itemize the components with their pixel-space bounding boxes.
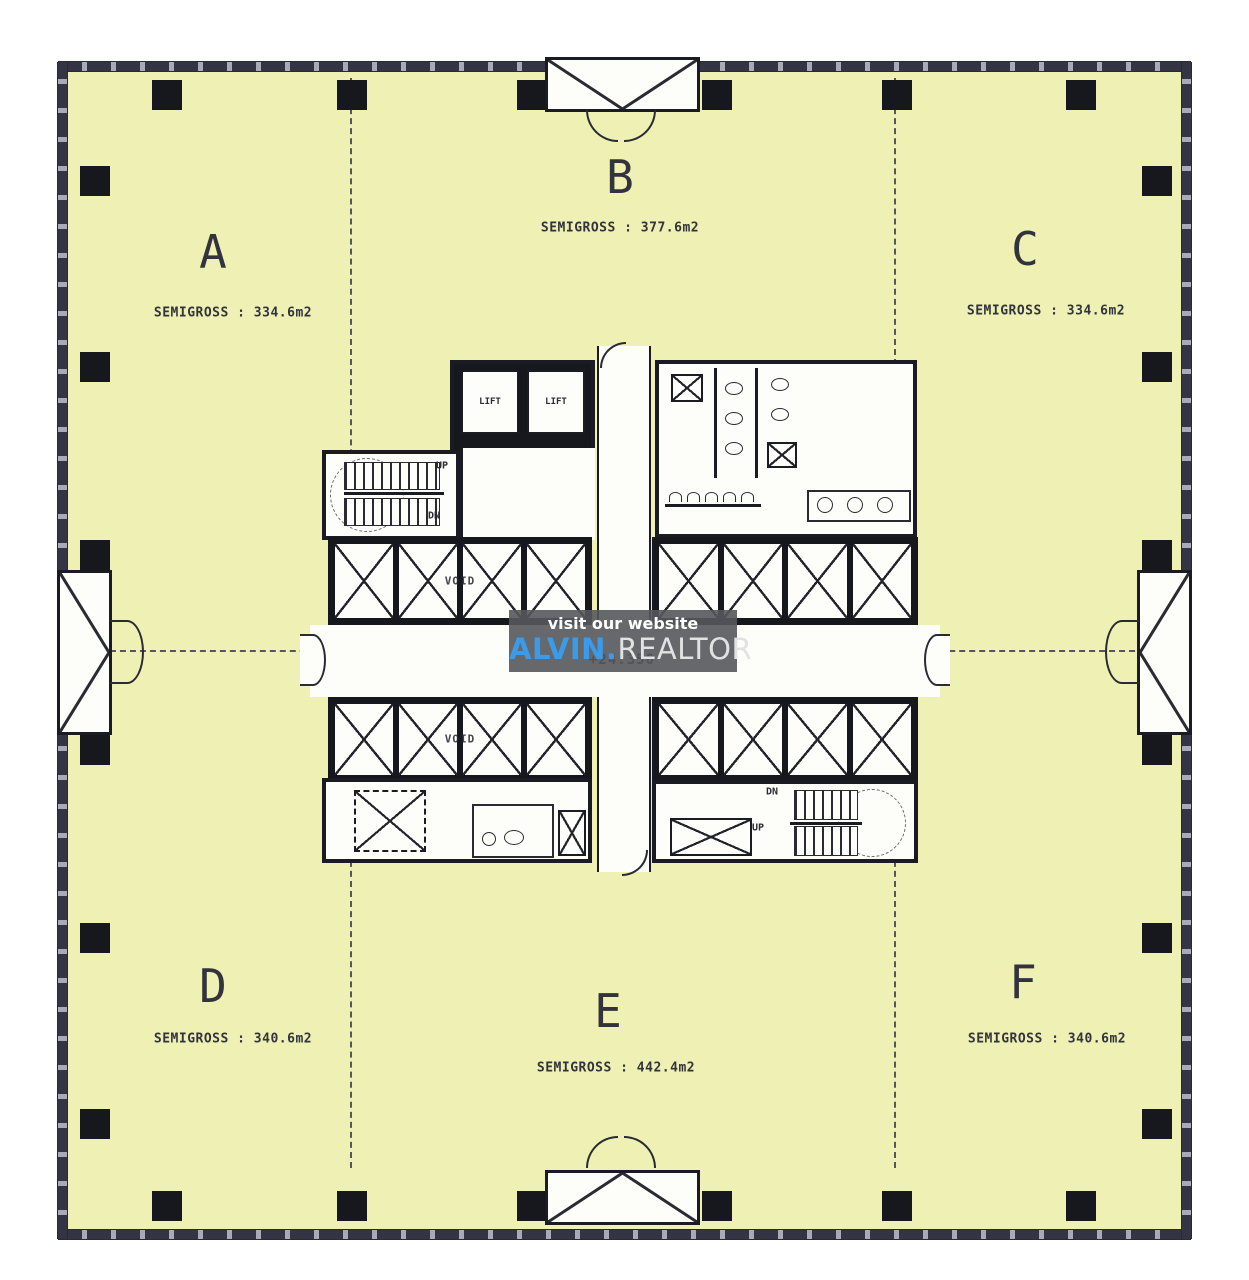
lift-cell — [659, 544, 718, 618]
lift-bank-lower — [652, 697, 918, 782]
void-cell — [335, 544, 393, 618]
column — [1142, 923, 1172, 953]
column — [80, 735, 110, 765]
column — [1142, 352, 1172, 382]
toilet-partition-wall — [755, 368, 758, 478]
column — [337, 80, 367, 110]
zone-label-f: F — [1009, 955, 1037, 1009]
sink-fixture — [877, 497, 893, 513]
vestibule-glazing-lines — [548, 1173, 697, 1222]
column — [80, 352, 110, 382]
lift-car: LIFT — [527, 370, 585, 434]
door-swing-arc — [110, 620, 144, 684]
toilet-fixture — [504, 830, 524, 845]
column — [517, 80, 547, 110]
service-shaft — [671, 374, 703, 402]
toilet-fixture — [771, 408, 789, 421]
lift-cell — [788, 544, 847, 618]
zone-area-f: SEMIGROSS : 340.6m2 — [968, 1032, 1126, 1047]
toilet-counter — [665, 504, 761, 507]
column — [80, 1109, 110, 1139]
column — [1142, 735, 1172, 765]
stair-treads — [794, 826, 858, 856]
watermark-tagline: visit our website — [509, 615, 737, 633]
lift-label: LIFT — [545, 397, 567, 407]
void-label: VOID — [445, 733, 476, 746]
stair-treads — [344, 498, 440, 526]
entrance-vestibule-bottom — [545, 1170, 700, 1225]
core-corridor-north — [597, 346, 651, 626]
lift-cell — [724, 704, 783, 775]
entrance-vestibule-top — [545, 57, 700, 112]
zone-label-d: D — [199, 959, 227, 1013]
service-shaft — [767, 442, 797, 468]
void-cell — [527, 704, 585, 775]
column — [152, 80, 182, 110]
service-shaft — [558, 810, 586, 856]
void-cell — [527, 544, 585, 618]
toilet-block-north — [655, 360, 917, 538]
stair-landing-edge — [790, 822, 862, 825]
service-block-south — [322, 778, 592, 863]
corridor-end-arc — [300, 634, 326, 686]
sink-fixture — [817, 497, 833, 513]
zone-label-b: B — [606, 150, 634, 204]
column — [337, 1191, 367, 1221]
lift-cell — [853, 704, 912, 775]
zone-area-b: SEMIGROSS : 377.6m2 — [541, 221, 699, 236]
column — [702, 80, 732, 110]
floorplan-page: LIFT LIFT UP DN VOID — [0, 0, 1249, 1280]
door-swing-arc — [1105, 620, 1139, 684]
lift-cell — [788, 704, 847, 775]
entrance-vestibule-right — [1137, 570, 1192, 735]
vestibule-glazing-lines — [548, 60, 697, 109]
watermark-brand: ALVIN.REALTOR — [509, 633, 737, 665]
lift-cell — [724, 544, 783, 618]
toilet-fixture — [725, 382, 743, 395]
zone-area-d: SEMIGROSS : 340.6m2 — [154, 1032, 312, 1047]
toilet-fixture — [771, 378, 789, 391]
watermark-brand-primary: ALVIN. — [509, 632, 617, 666]
void-cell — [335, 704, 393, 775]
watermark-brand-secondary: REALTOR — [617, 632, 752, 666]
zone-area-c: SEMIGROSS : 334.6m2 — [967, 304, 1125, 319]
zone-label-a: A — [199, 225, 227, 279]
urinal-row — [669, 492, 754, 502]
watermark-banner[interactable]: visit our website ALVIN.REALTOR — [509, 610, 737, 672]
service-shaft — [670, 818, 752, 856]
stair-landing-edge — [344, 492, 444, 495]
stair-treads — [344, 462, 440, 490]
column — [882, 1191, 912, 1221]
lift-car: LIFT — [461, 370, 519, 434]
column — [1066, 80, 1096, 110]
zone-area-a: SEMIGROSS : 334.6m2 — [154, 306, 312, 321]
zone-area-e: SEMIGROSS : 442.4m2 — [537, 1061, 695, 1076]
toilet-partition-wall — [714, 368, 717, 478]
stair-down-label: DN — [428, 511, 440, 522]
column — [517, 1191, 547, 1221]
column — [1142, 1109, 1172, 1139]
sink-fixture — [847, 497, 863, 513]
stair-down-label: DN — [766, 787, 778, 798]
column — [1142, 540, 1172, 570]
lift-cell — [853, 544, 912, 618]
column — [1066, 1191, 1096, 1221]
stair-treads — [794, 790, 858, 820]
vestibule-glazing-lines — [60, 573, 109, 732]
zone-label-e: E — [594, 984, 622, 1038]
column — [80, 166, 110, 196]
toilet-fixture — [725, 442, 743, 455]
lift-lobby-north — [460, 448, 595, 540]
toilet-fixture — [482, 832, 496, 846]
stair-up-label: UP — [436, 461, 448, 472]
service-lift — [354, 790, 426, 852]
lift-label: LIFT — [479, 397, 501, 407]
stair-block-south — [652, 780, 918, 863]
void-label: VOID — [445, 575, 476, 588]
column — [152, 1191, 182, 1221]
column — [1142, 166, 1172, 196]
wall-bottom — [58, 1230, 1191, 1239]
vestibule-glazing-lines — [1140, 573, 1189, 732]
toilet-fixture — [725, 412, 743, 425]
column — [882, 80, 912, 110]
column — [80, 923, 110, 953]
column — [80, 540, 110, 570]
lift-cell — [659, 704, 718, 775]
corridor-end-arc — [924, 634, 950, 686]
zone-label-c: C — [1011, 222, 1039, 276]
column — [702, 1191, 732, 1221]
stair-up-label: UP — [752, 823, 764, 834]
entrance-vestibule-left — [57, 570, 112, 735]
